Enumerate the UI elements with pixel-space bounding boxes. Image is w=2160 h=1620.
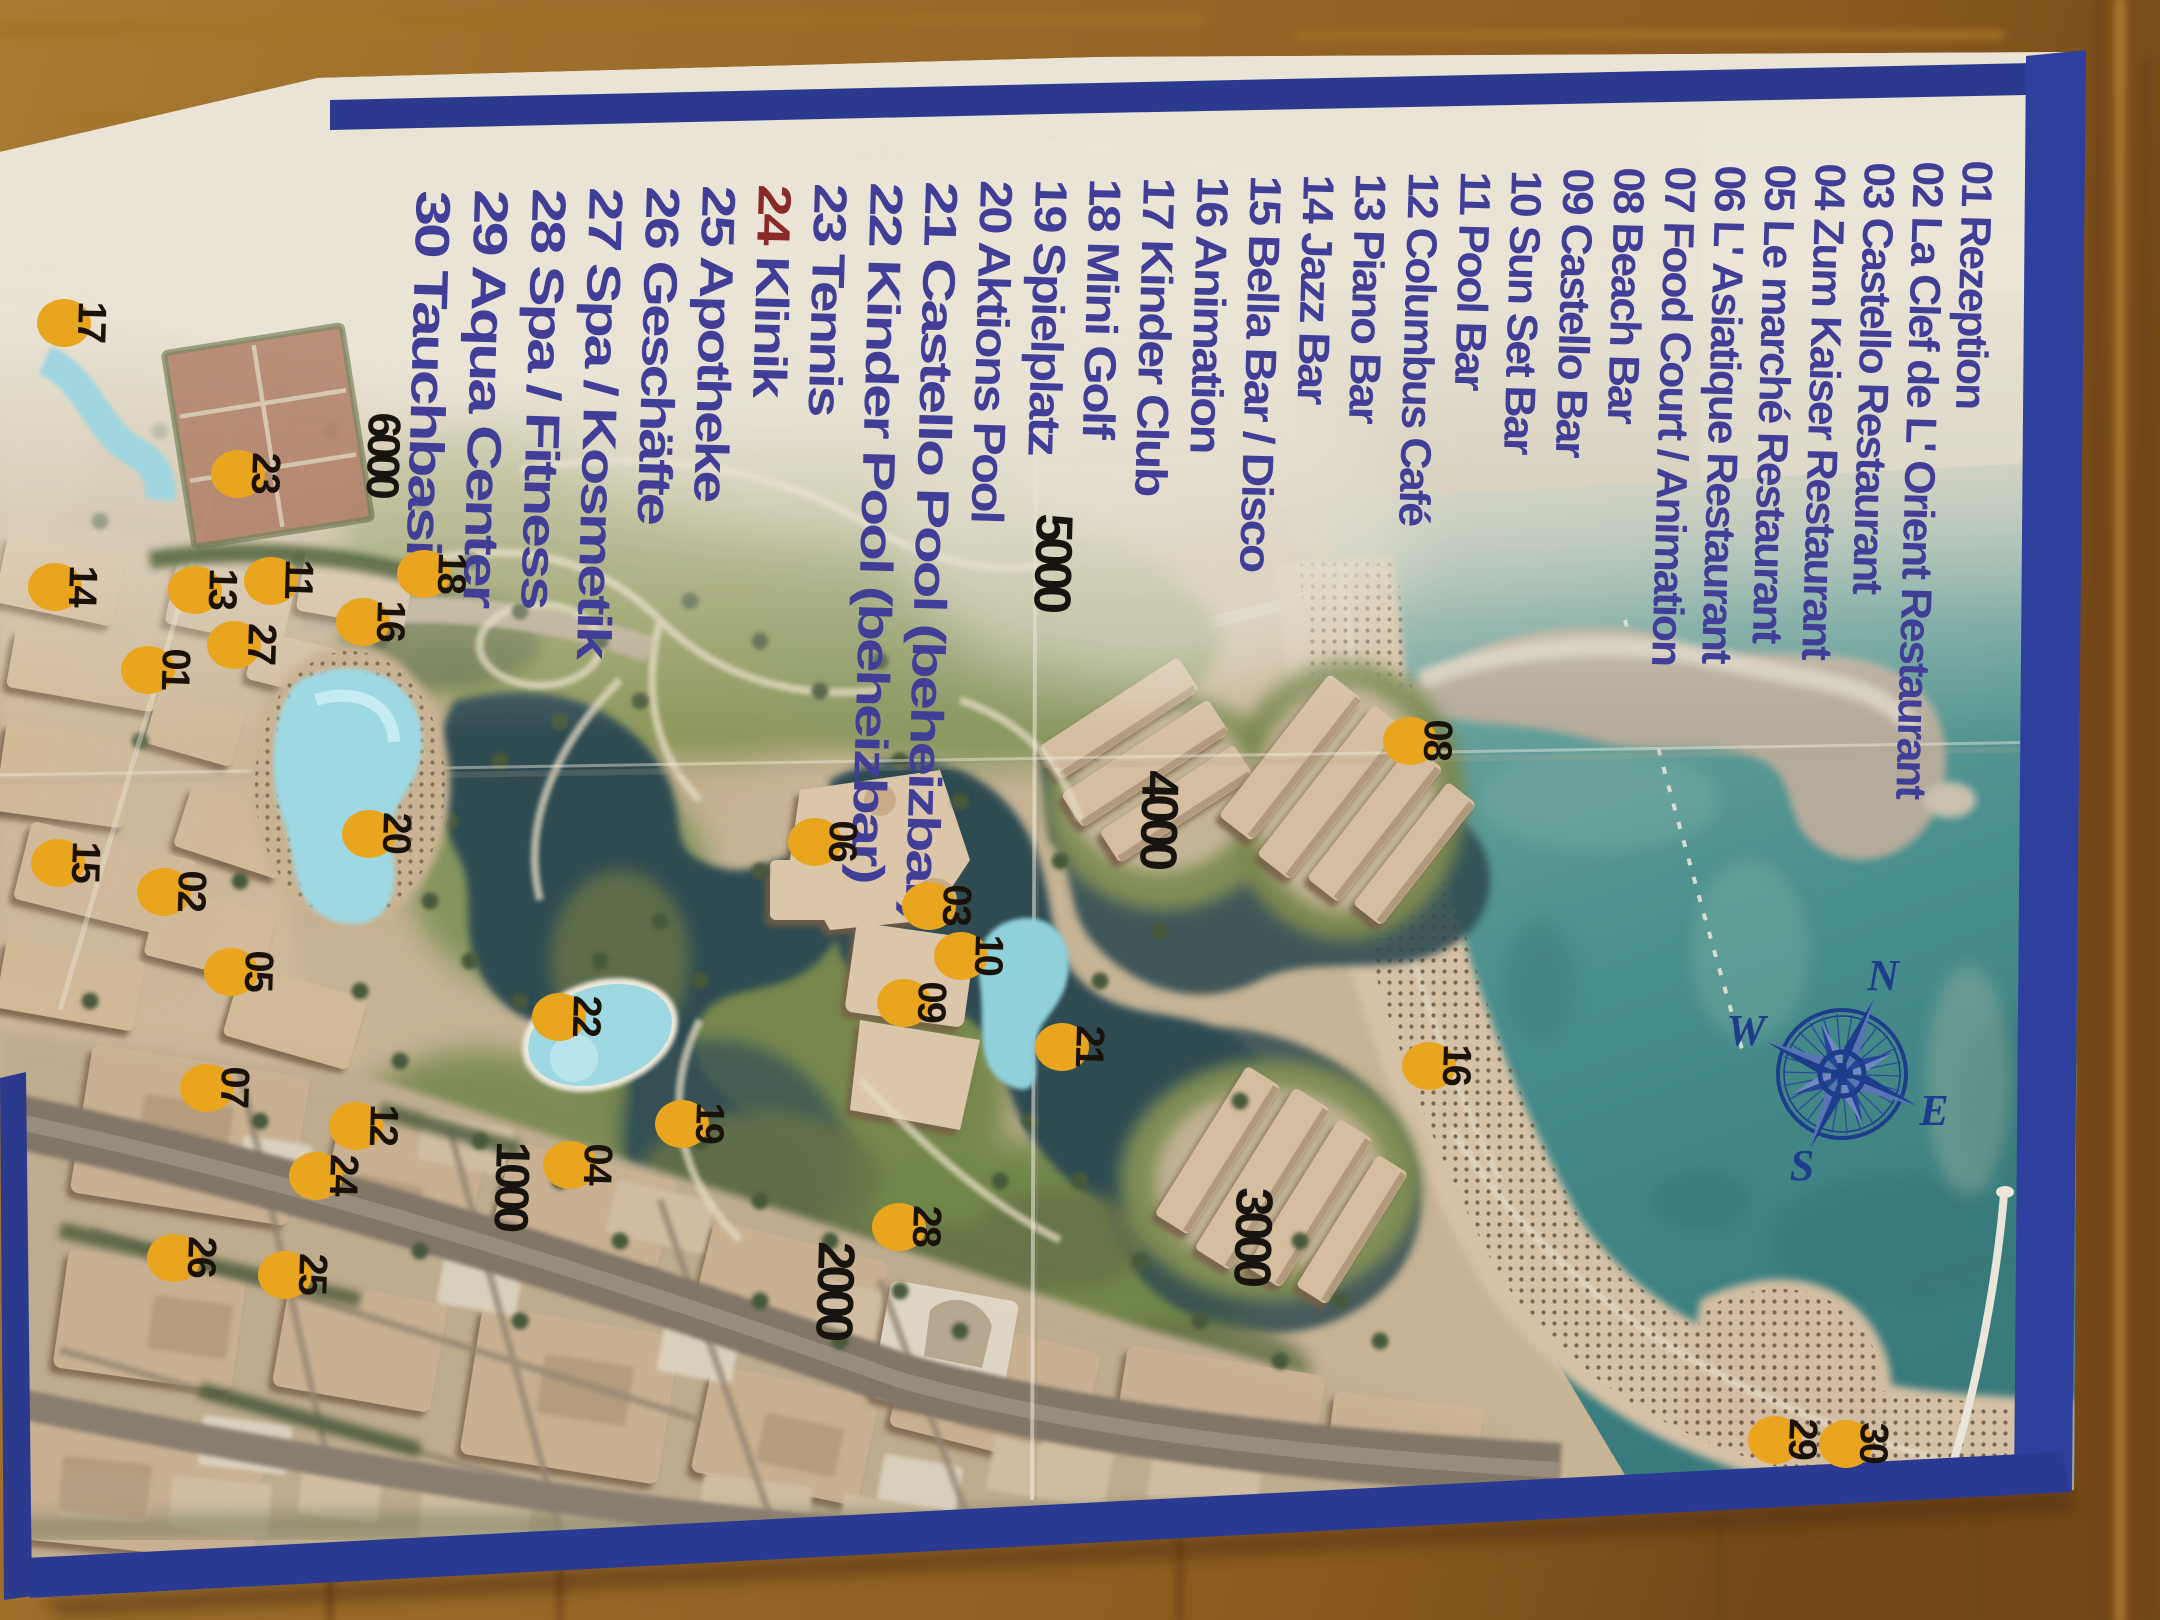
svg-text:26 Geschäfte: 26 Geschäfte	[627, 186, 689, 526]
svg-text:17: 17	[69, 301, 114, 343]
svg-text:29: 29	[1780, 1418, 1825, 1460]
svg-text:01: 01	[153, 648, 198, 691]
svg-text:23 Tennis: 23 Tennis	[799, 183, 857, 417]
svg-text:16 Animation: 16 Animation	[1181, 176, 1238, 453]
svg-text:06: 06	[820, 820, 865, 862]
svg-text:28: 28	[904, 1205, 949, 1248]
svg-text:09 Castello Bar: 09 Castello Bar	[1546, 168, 1602, 459]
svg-text:6000: 6000	[357, 412, 411, 499]
svg-text:19 Spielplatz: 19 Spielplatz	[1018, 179, 1076, 457]
svg-text:14: 14	[60, 565, 105, 609]
svg-text:1000: 1000	[483, 1141, 538, 1233]
svg-text:18 Mini Golf: 18 Mini Golf	[1072, 178, 1130, 442]
svg-text:4000: 4000	[1128, 770, 1189, 870]
svg-text:13 Piano Bar: 13 Piano Bar	[1339, 173, 1394, 425]
svg-text:08 Beach Bar: 08 Beach Bar	[1598, 167, 1653, 426]
svg-text:W: W	[1726, 1006, 1768, 1055]
svg-text:11 Pool Bar: 11 Pool Bar	[1445, 171, 1499, 392]
svg-text:E: E	[1918, 1086, 1948, 1135]
svg-text:20: 20	[374, 812, 419, 854]
svg-text:24: 24	[321, 1154, 366, 1198]
svg-text:30: 30	[1851, 1422, 1896, 1464]
svg-text:27: 27	[239, 623, 284, 665]
svg-text:05: 05	[236, 950, 281, 993]
svg-text:07: 07	[212, 1066, 257, 1108]
svg-text:16: 16	[368, 600, 413, 642]
svg-text:16: 16	[1434, 1044, 1479, 1086]
svg-text:15: 15	[63, 841, 108, 884]
svg-text:03: 03	[934, 884, 979, 926]
svg-text:20 Aktions Pool: 20 Aktions Pool	[961, 180, 1021, 523]
svg-text:3000: 3000	[1222, 1187, 1283, 1287]
svg-text:10: 10	[966, 934, 1011, 976]
svg-text:30 Tauchbasis: 30 Tauchbasis	[395, 190, 460, 589]
svg-text:S: S	[1790, 1141, 1814, 1190]
svg-text:N: N	[1866, 951, 1901, 1000]
svg-text:11: 11	[276, 559, 321, 600]
svg-text:08: 08	[1415, 719, 1460, 762]
svg-text:09: 09	[909, 981, 954, 1023]
svg-text:10 Sun Set Bar: 10 Sun Set Bar	[1494, 170, 1550, 456]
svg-text:04: 04	[575, 1143, 620, 1187]
svg-text:19: 19	[687, 1102, 732, 1144]
svg-text:14 Jazz Bar: 14 Jazz Bar	[1288, 174, 1344, 406]
svg-text:26: 26	[179, 1236, 224, 1278]
svg-text:2000: 2000	[804, 1241, 865, 1341]
svg-text:17 Kinder Club: 17 Kinder Club	[1125, 177, 1184, 496]
svg-text:22: 22	[564, 995, 609, 1037]
svg-text:12 Columbus Café: 12 Columbus Café	[1389, 172, 1447, 527]
svg-text:02: 02	[169, 870, 214, 912]
svg-text:5000: 5000	[1022, 513, 1083, 613]
svg-text:13: 13	[200, 568, 245, 610]
svg-text:12: 12	[361, 1104, 406, 1146]
svg-text:25 Apotheke: 25 Apotheke	[684, 185, 745, 503]
svg-text:21: 21	[1067, 1025, 1112, 1068]
svg-text:18: 18	[429, 552, 474, 595]
svg-text:24 Klinik: 24 Klinik	[742, 184, 800, 400]
svg-text:01 Rezeption: 01 Rezeption	[1946, 160, 2001, 409]
svg-text:23: 23	[243, 452, 288, 494]
svg-text:25: 25	[290, 1253, 335, 1296]
